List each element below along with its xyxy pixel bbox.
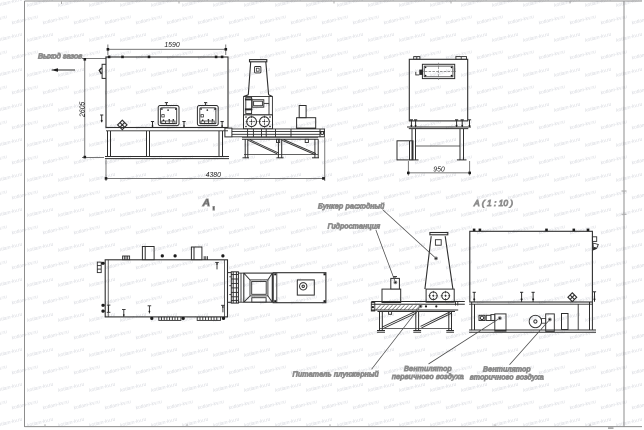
svg-text:А: А (202, 197, 211, 209)
svg-text:Питатель плунжерный: Питатель плунжерный (293, 369, 379, 378)
svg-text:950: 950 (433, 166, 445, 173)
svg-text:2605: 2605 (79, 101, 86, 117)
svg-text:вторичного воздуха: вторичного воздуха (470, 372, 544, 381)
svg-text:Бункер расходный: Бункер расходный (318, 201, 385, 210)
svg-text:4380: 4380 (206, 172, 221, 179)
svg-text:1590: 1590 (164, 42, 179, 49)
svg-text:Гидростанция: Гидростанция (328, 221, 381, 230)
svg-text:Выход газов: Выход газов (38, 52, 82, 61)
svg-text:А ( 1 : 10 ): А ( 1 : 10 ) (473, 198, 513, 208)
svg-text:первичного воздуха: первичного воздуха (392, 372, 464, 381)
